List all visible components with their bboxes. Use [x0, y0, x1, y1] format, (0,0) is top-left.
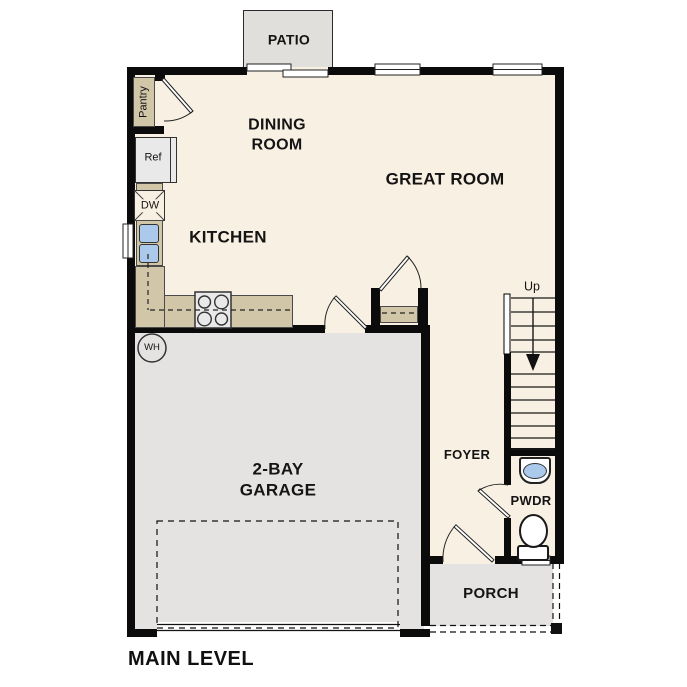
opening-front-door	[443, 556, 495, 564]
wall-stair-powder-left	[504, 352, 511, 563]
wall-stair-powder-divider	[504, 448, 564, 456]
wall-left	[127, 67, 135, 637]
garage-label: 2-BAY GARAGE	[240, 459, 316, 500]
counter-bottom	[164, 295, 293, 328]
wall-right	[555, 67, 564, 564]
page-title: MAIN LEVEL	[128, 648, 254, 671]
wall-garage-right	[421, 325, 430, 626]
wall-closet-left	[371, 288, 380, 333]
refrigerator-door-line	[170, 138, 171, 182]
opening-garage-door	[157, 629, 400, 637]
opening-slider	[247, 67, 328, 75]
kitchen-label: KITCHEN	[189, 228, 267, 249]
sink-basin-bottom	[139, 244, 159, 263]
great-room-label: GREAT ROOM	[386, 170, 505, 191]
wall-pantry-bottom	[133, 126, 164, 134]
refrigerator-label: Ref	[144, 151, 161, 164]
dining-room-label: DINING ROOM	[248, 115, 306, 154]
wall-top	[128, 67, 564, 75]
opening-kitchen-garage-door	[325, 325, 365, 333]
water-heater-label: WH	[144, 342, 160, 354]
wall-pantry-stub	[155, 75, 165, 81]
pantry-label: Pantry	[137, 86, 150, 118]
closet-shelf	[380, 306, 418, 323]
dishwasher-label: DW	[140, 199, 160, 212]
patio-label: PATIO	[268, 31, 310, 48]
sink-basin-top	[139, 224, 159, 243]
floor-plan: PATIO Pantry DINING ROOM GREAT ROOM Ref …	[0, 0, 687, 687]
powder-sink	[523, 463, 547, 479]
foyer-label: FOYER	[444, 447, 490, 463]
counter-left	[135, 266, 165, 328]
porch-label: PORCH	[463, 585, 519, 603]
powder-label: PWDR	[511, 493, 552, 509]
stairs-up-label: Up	[524, 279, 540, 294]
wall-closet-right	[418, 288, 428, 333]
